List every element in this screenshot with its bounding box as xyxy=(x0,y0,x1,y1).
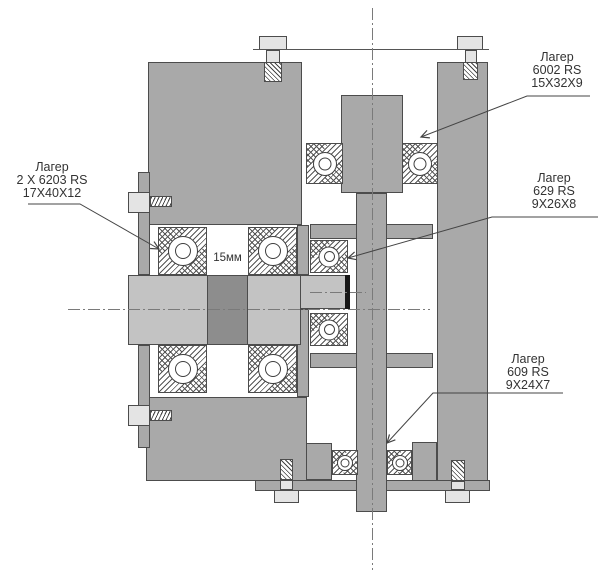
bolt-bottom-right-head xyxy=(445,490,470,503)
bearing-629-upper xyxy=(310,240,348,273)
bearing-ring xyxy=(168,236,198,266)
screw-left-upper-thread xyxy=(150,196,172,207)
bolt-bottom-right-thread xyxy=(451,460,465,481)
right-bearing-seat-step xyxy=(412,442,437,482)
bolt-bottom-left-head xyxy=(274,490,299,503)
left-flange-strip-lower xyxy=(138,345,150,448)
bearing-bore xyxy=(414,157,427,170)
horizontal-shaft-stub xyxy=(300,275,346,309)
bearing-bore xyxy=(341,458,350,467)
label-bearing-6002-dims: 15X32X9 xyxy=(521,77,593,90)
bearing-ring xyxy=(168,354,198,384)
bearing-bore xyxy=(324,324,335,335)
label-bearing-629-dims: 9X26X8 xyxy=(518,198,590,211)
vertical-shaft-top-section xyxy=(341,95,403,193)
bearing-6002-right xyxy=(402,143,438,184)
label-bearing-6203: Лагер 2 X 6203 RS 17X40X12 xyxy=(6,161,98,200)
right-column xyxy=(437,62,488,482)
left-flange-strip-upper xyxy=(138,172,150,275)
label-bearing-629-name: Лагер xyxy=(518,172,590,185)
bearing-629-lower xyxy=(310,313,348,346)
label-bearing-6002-model: 6002 RS xyxy=(521,64,593,77)
vertical-shaft-narrow-section xyxy=(356,193,387,512)
screw-left-upper-head xyxy=(128,192,150,213)
label-bearing-609-name: Лагер xyxy=(495,353,561,366)
bearing-bore xyxy=(265,243,281,259)
spacer-dimension-label: 15мм xyxy=(207,252,248,264)
bearing-6203-bottom-left xyxy=(158,345,207,393)
label-bearing-6203-dims: 17X40X12 xyxy=(6,187,98,200)
bearing-ring xyxy=(337,455,353,471)
bolt-top-left-thread xyxy=(264,62,282,82)
label-bearing-609-dims: 9X24X7 xyxy=(495,379,561,392)
label-bearing-629-model: 629 RS xyxy=(518,185,590,198)
bearing-ring xyxy=(408,152,432,176)
bearing-ring xyxy=(392,455,408,471)
bolt-top-right-head xyxy=(457,36,483,50)
label-bearing-6002: Лагер 6002 RS 15X32X9 xyxy=(521,51,593,90)
bearing-bore xyxy=(265,361,281,377)
bolt-bottom-left-thread xyxy=(280,459,293,480)
label-bearing-629: Лагер 629 RS 9X26X8 xyxy=(518,172,590,211)
shaft-end-bar xyxy=(345,275,350,309)
bearing-ring xyxy=(313,152,337,176)
bearing-609-left xyxy=(332,450,358,475)
label-bearing-609-model: 609 RS xyxy=(495,366,561,379)
bearing-6002-left xyxy=(306,143,343,184)
shaft-spacer xyxy=(207,275,248,345)
label-bearing-6203-model: 2 X 6203 RS xyxy=(6,174,98,187)
screw-left-lower-head xyxy=(128,405,150,426)
label-bearing-609: Лагер 609 RS 9X24X7 xyxy=(495,353,561,392)
bolt-bottom-right-shank xyxy=(451,481,465,490)
bearing-6203-bottom-right xyxy=(248,345,297,393)
bearing-assembly-drawing: Лагер 2 X 6203 RS 17X40X12 Лагер 6002 RS… xyxy=(0,0,611,576)
bearing-ring xyxy=(319,246,340,267)
bearing-bore xyxy=(175,361,191,377)
screw-left-lower-thread xyxy=(150,410,172,421)
bearing-bore xyxy=(175,243,191,259)
bolt-top-right-thread xyxy=(463,62,478,80)
bearing-bore xyxy=(324,251,335,262)
bearing-609-right xyxy=(387,450,412,475)
bearing-ring xyxy=(258,236,288,266)
bearing-6203-top-left xyxy=(158,227,207,275)
bolt-top-left-head xyxy=(259,36,287,50)
left-bearing-seat-step xyxy=(306,443,332,480)
bearing-bore xyxy=(318,157,331,170)
bolt-bottom-left-shank xyxy=(280,480,293,490)
housing-wall-upper xyxy=(297,225,309,275)
bearing-ring xyxy=(258,354,288,384)
label-bearing-6203-name: Лагер xyxy=(6,161,98,174)
bearing-bore xyxy=(395,458,404,467)
bearing-ring xyxy=(319,319,340,340)
label-bearing-6002-name: Лагер xyxy=(521,51,593,64)
bearing-6203-top-right xyxy=(248,227,297,275)
